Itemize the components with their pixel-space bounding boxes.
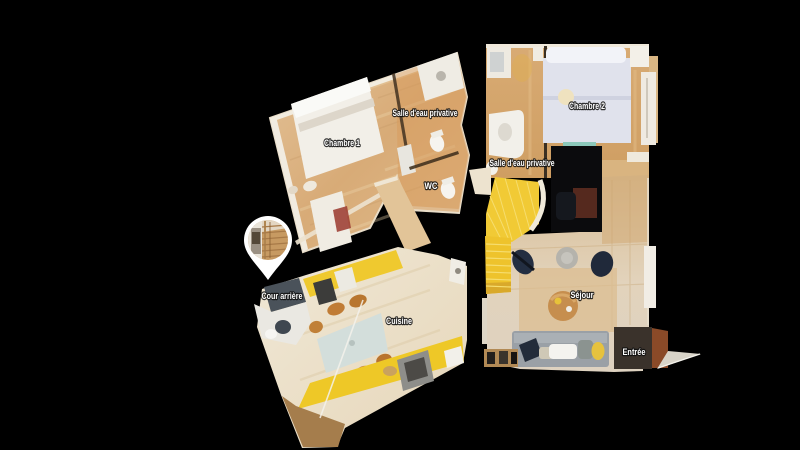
svg-text:Entrée: Entrée — [623, 347, 646, 357]
svg-text:Cour arrière: Cour arrière — [262, 291, 303, 301]
svg-text:Cuisine: Cuisine — [386, 316, 412, 326]
svg-text:WC: WC — [425, 181, 438, 191]
svg-text:Séjour: Séjour — [571, 290, 594, 300]
svg-text:Salle d'eau privative: Salle d'eau privative — [490, 158, 555, 168]
svg-text:Salle d'eau privative: Salle d'eau privative — [393, 108, 458, 118]
svg-text:Chambre 2: Chambre 2 — [569, 101, 605, 111]
svg-text:Chambre 1: Chambre 1 — [324, 138, 360, 148]
